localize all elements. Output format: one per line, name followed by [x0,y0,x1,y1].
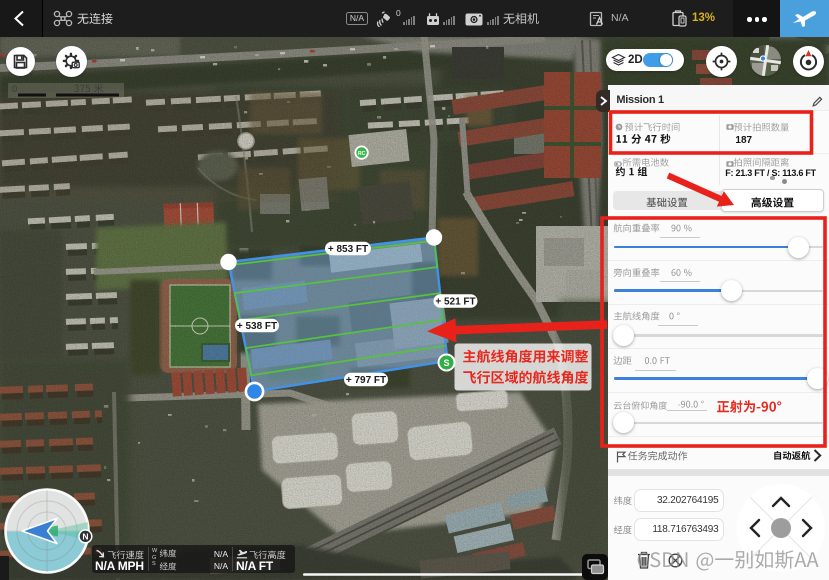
svg-text:S: S [443,358,449,368]
svg-text:+ 521 FT: + 521 FT [435,296,475,307]
svg-text:0: 0 [12,84,17,95]
svg-text:+ 538 FT: + 538 FT [237,321,277,332]
svg-text:N: N [82,532,88,542]
svg-text:RC: RC [358,151,366,157]
svg-text:+ 853 FT: + 853 FT [328,244,368,255]
svg-text:+ 797 FT: + 797 FT [346,375,386,386]
